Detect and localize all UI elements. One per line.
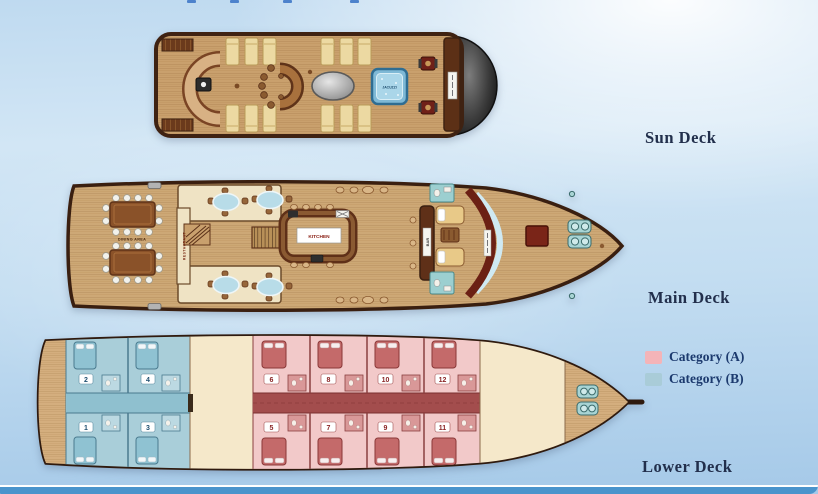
cabin-section-a (253, 333, 480, 475)
dining-area-label: DINING AREA (118, 238, 146, 242)
cropped-title-mark (350, 0, 359, 3)
oval-deck-table (312, 72, 354, 100)
cabin-9-label: 9 (384, 425, 388, 432)
category-a-swatch (645, 351, 662, 364)
foredeck-hatch (526, 226, 548, 246)
cabin-11-label: 11 (439, 425, 447, 432)
legend-item-category-a: Category (A) (645, 349, 744, 365)
lower-deck-plan: 2 4 1 3 6 8 10 12 5 7 9 11 (26, 333, 646, 475)
cabin-5-label: 5 (270, 425, 274, 432)
deck-fitting (308, 70, 312, 74)
cabin-7-label: 7 (327, 425, 331, 432)
cabin-8-label: 8 (327, 377, 331, 384)
jacuzzi: JACUZZI (372, 69, 407, 104)
jacuzzi-label: JACUZZI (382, 86, 396, 90)
category-b-swatch (645, 373, 662, 386)
category-legend: Category (A) Category (B) (645, 349, 744, 393)
cropped-title-mark (187, 0, 196, 3)
corridor-b (66, 393, 190, 413)
category-b-label: Category (B) (669, 371, 744, 387)
lower-deck-label: Lower Deck (642, 457, 732, 477)
bar-counter: BAR (420, 206, 434, 280)
bottom-border-bar (0, 485, 818, 494)
bar-label: BAR (425, 238, 430, 247)
cabin-10-label: 10 (382, 377, 390, 384)
bench-table (196, 78, 211, 91)
main-deck-plan: DINING AREA (56, 180, 628, 312)
main-deck-label: Main Deck (648, 288, 730, 308)
legend-item-category-b: Category (B) (645, 371, 744, 387)
cabin-2-label: 2 (84, 377, 88, 384)
deck-fitting (235, 84, 240, 89)
sun-deck-label: Sun Deck (645, 128, 716, 148)
cabin-4-label: 4 (146, 377, 150, 384)
crew-area (480, 333, 565, 475)
staircase-aft (184, 224, 210, 245)
deck-plan-page: JACUZZI Sun Deck (0, 0, 818, 494)
stern-deck-wood (34, 333, 66, 475)
cabin-3-label: 3 (146, 425, 150, 432)
sun-deck-plan: JACUZZI (150, 28, 506, 142)
engine-room (190, 333, 253, 475)
cabin-12-label: 12 (439, 377, 447, 384)
sun-deck-side-console (444, 38, 460, 131)
staircase-mid (252, 227, 282, 248)
kitchen-label: KITCHEN (308, 234, 330, 240)
bow-deck-wood (565, 333, 635, 475)
cabin-1-label: 1 (84, 425, 88, 432)
restaurant-label: RESTAURANT (183, 232, 187, 261)
category-a-label: Category (A) (669, 349, 744, 365)
engine-room-door (188, 394, 193, 412)
cropped-title-mark (283, 0, 292, 3)
cabin-6-label: 6 (270, 377, 274, 384)
cropped-title-mark (230, 0, 239, 3)
cabin-section-b (66, 333, 190, 475)
